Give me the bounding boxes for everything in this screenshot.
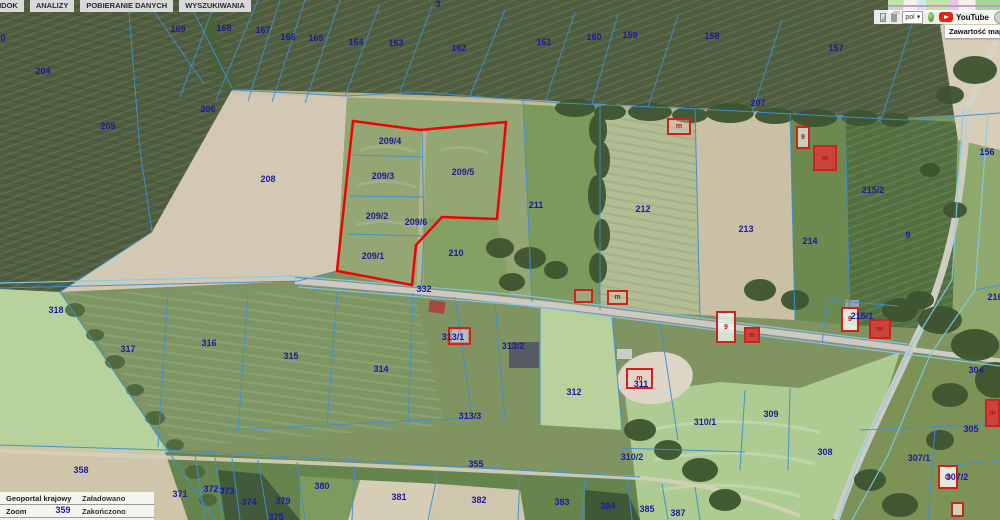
map-canvas[interactable] <box>0 0 1000 520</box>
status-value: Zakończono <box>82 507 126 516</box>
menu-bar: WIDOK ANALIZY POBIERANIE DANYCH WYSZUKIW… <box>0 0 251 12</box>
status-source: Zoom <box>6 507 72 516</box>
status-row: Geoportal krajowy Załadowano <box>0 492 154 505</box>
youtube-label: YouTube <box>956 13 989 22</box>
geoportal-map-viewer: m9mmm9m9mmm 1691681671661651641631621611… <box>0 0 1000 520</box>
status-row: Zoom Zakończono <box>0 505 154 518</box>
help-icon[interactable] <box>994 11 1000 24</box>
youtube-link[interactable]: YouTube <box>939 12 989 22</box>
menu-item-analizy[interactable]: ANALIZY <box>30 0 75 12</box>
map-contents-tooltip[interactable]: Zawartość map <box>945 25 1000 38</box>
map-toolbar: pol ▾ YouTube <box>874 10 1000 24</box>
status-value: Załadowano <box>82 494 125 503</box>
youtube-play-icon <box>939 12 953 22</box>
language-value: pol <box>905 14 914 21</box>
language-select[interactable]: pol ▾ <box>902 11 923 24</box>
menu-item-pobieranie-danych[interactable]: POBIERANIE DANYCH <box>80 0 173 12</box>
globe-icon[interactable] <box>928 12 934 22</box>
menu-item-widok[interactable]: WIDOK <box>0 0 24 12</box>
print-icon[interactable] <box>891 13 897 22</box>
menu-item-wyszukiwania[interactable]: WYSZUKIWANIA <box>179 0 251 12</box>
layer-status-panel: Geoportal krajowy Załadowano Zoom Zakońc… <box>0 492 154 520</box>
layers-icon[interactable] <box>880 13 886 22</box>
chevron-down-icon: ▾ <box>917 13 921 21</box>
status-source: Geoportal krajowy <box>6 494 72 503</box>
minimap-road <box>888 5 1000 7</box>
